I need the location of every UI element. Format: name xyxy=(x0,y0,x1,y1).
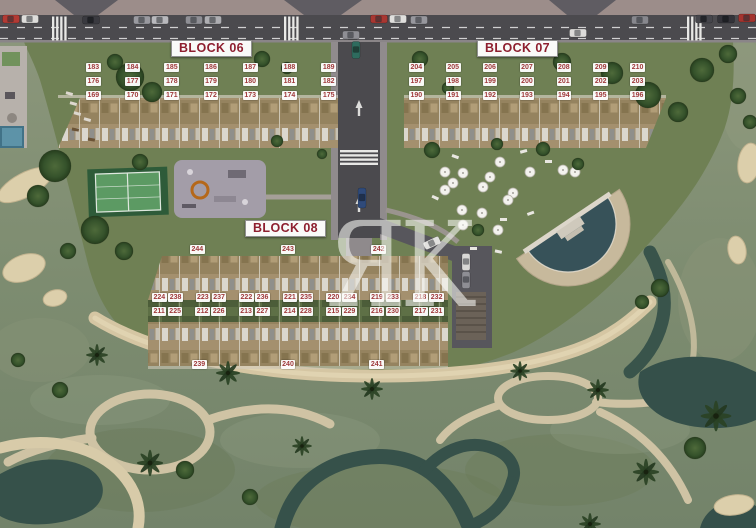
unit-pair: 218232 xyxy=(413,293,444,302)
unit-label: 213 xyxy=(239,307,254,316)
unit-label: 220 xyxy=(326,293,341,302)
unit-label: 230 xyxy=(386,307,401,316)
unit-label: 238 xyxy=(168,293,183,302)
unit-label: 188 xyxy=(282,63,297,72)
unit-pair: 219233 xyxy=(370,293,401,302)
unit-label: 203 xyxy=(630,77,645,86)
unit-label: 233 xyxy=(386,293,401,302)
unit-label: 239 xyxy=(192,360,207,369)
unit-label: 236 xyxy=(255,293,270,302)
unit-label: 204 xyxy=(409,63,424,72)
unit-label: 244 xyxy=(190,245,205,254)
block06-buildings xyxy=(58,95,338,148)
unit-label: 223 xyxy=(196,293,211,302)
unit-pair: 213227 xyxy=(239,307,270,316)
unit-label: 224 xyxy=(152,293,167,302)
unit-label: 196 xyxy=(630,91,645,100)
block08-top-row: 244243242 xyxy=(190,245,386,254)
block06-unit-row-1: 183184185186187188189 xyxy=(86,63,336,72)
block06-label: BLOCK 06 xyxy=(171,40,252,57)
unit-label: 206 xyxy=(483,63,498,72)
block07-unit-row-3: 190191192193194195196 xyxy=(409,91,645,100)
unit-label: 202 xyxy=(593,77,608,86)
unit-label: 170 xyxy=(125,91,140,100)
unit-label: 175 xyxy=(321,91,336,100)
unit-label: 193 xyxy=(520,91,535,100)
unit-label: 181 xyxy=(282,77,297,86)
unit-label: 169 xyxy=(86,91,101,100)
block07-label: BLOCK 07 xyxy=(477,40,558,57)
unit-label: 231 xyxy=(429,307,444,316)
unit-pair: 222236 xyxy=(239,293,270,302)
unit-label: 226 xyxy=(211,307,226,316)
unit-label: 218 xyxy=(413,293,428,302)
unit-pair: 221235 xyxy=(283,293,314,302)
unit-label: 189 xyxy=(321,63,336,72)
unit-label: 237 xyxy=(212,293,227,302)
unit-label: 182 xyxy=(321,77,336,86)
block08-row-a: 2242382232372222362212352202342192332182… xyxy=(152,293,444,302)
unit-label: 210 xyxy=(630,63,645,72)
unit-label: 211 xyxy=(152,307,166,316)
unit-label: 184 xyxy=(125,63,140,72)
unit-label: 192 xyxy=(483,91,498,100)
block08-label: BLOCK 08 xyxy=(245,220,326,237)
unit-label: 174 xyxy=(282,91,297,100)
site-plan: BLOCK 06 BLOCK 07 BLOCK 08 1831841851861… xyxy=(0,0,756,528)
unit-label: 190 xyxy=(409,91,424,100)
unit-label: 222 xyxy=(239,293,254,302)
unit-label: 241 xyxy=(369,360,384,369)
block07-unit-row-2: 197198199200201202203 xyxy=(409,77,645,86)
unit-label: 199 xyxy=(483,77,498,86)
plaza-pool xyxy=(0,126,24,148)
block07-buildings xyxy=(404,95,666,148)
playground xyxy=(174,160,266,218)
unit-label: 185 xyxy=(164,63,179,72)
unit-pair: 224238 xyxy=(152,293,183,302)
unit-label: 200 xyxy=(520,77,535,86)
unit-label: 207 xyxy=(520,63,535,72)
unit-label: 180 xyxy=(243,77,258,86)
block07-unit-row-1: 204205206207208209210 xyxy=(409,63,645,72)
unit-pair: 212226 xyxy=(195,307,226,316)
unit-label: 179 xyxy=(204,77,219,86)
block06-unit-row-2: 176177178179180181182 xyxy=(86,77,336,86)
block06-unit-row-3: 169170171172173174175 xyxy=(86,91,336,100)
unit-label: 229 xyxy=(342,307,357,316)
unit-label: 221 xyxy=(283,293,298,302)
block08-bottom-row: 239240241 xyxy=(192,360,384,369)
unit-label: 209 xyxy=(593,63,608,72)
unit-label: 234 xyxy=(342,293,357,302)
unit-label: 232 xyxy=(429,293,444,302)
unit-pair: 220234 xyxy=(326,293,357,302)
unit-label: 228 xyxy=(299,307,314,316)
unit-label: 242 xyxy=(371,245,386,254)
unit-label: 197 xyxy=(409,77,424,86)
unit-label: 235 xyxy=(299,293,314,302)
block08-row-b: 2112252122262132272142282152292162302172… xyxy=(152,307,444,316)
unit-label: 217 xyxy=(413,307,428,316)
unit-pair: 223237 xyxy=(196,293,227,302)
unit-label: 215 xyxy=(326,307,341,316)
unit-label: 172 xyxy=(204,91,219,100)
unit-label: 243 xyxy=(281,245,296,254)
unit-label: 195 xyxy=(593,91,608,100)
unit-label: 212 xyxy=(195,307,210,316)
unit-pair: 214228 xyxy=(282,307,313,316)
unit-label: 171 xyxy=(164,91,179,100)
unit-label: 187 xyxy=(243,63,258,72)
unit-label: 176 xyxy=(86,77,101,86)
unit-label: 194 xyxy=(557,91,572,100)
unit-label: 216 xyxy=(370,307,385,316)
unit-label: 186 xyxy=(204,63,219,72)
unit-pair: 216230 xyxy=(370,307,401,316)
unit-pair: 215229 xyxy=(326,307,357,316)
unit-label: 177 xyxy=(125,77,140,86)
unit-label: 225 xyxy=(168,307,183,316)
unit-pair: 217231 xyxy=(413,307,444,316)
unit-pair: 211225 xyxy=(152,307,182,316)
unit-label: 219 xyxy=(370,293,385,302)
unit-label: 205 xyxy=(446,63,461,72)
unit-label: 214 xyxy=(282,307,297,316)
unit-label: 178 xyxy=(164,77,179,86)
tennis-court xyxy=(87,167,169,218)
unit-label: 240 xyxy=(281,360,296,369)
unit-label: 227 xyxy=(255,307,270,316)
unit-label: 183 xyxy=(86,63,101,72)
unit-label: 191 xyxy=(446,91,461,100)
unit-label: 198 xyxy=(446,77,461,86)
unit-label: 173 xyxy=(243,91,258,100)
unit-label: 201 xyxy=(557,77,572,86)
unit-label: 208 xyxy=(557,63,572,72)
